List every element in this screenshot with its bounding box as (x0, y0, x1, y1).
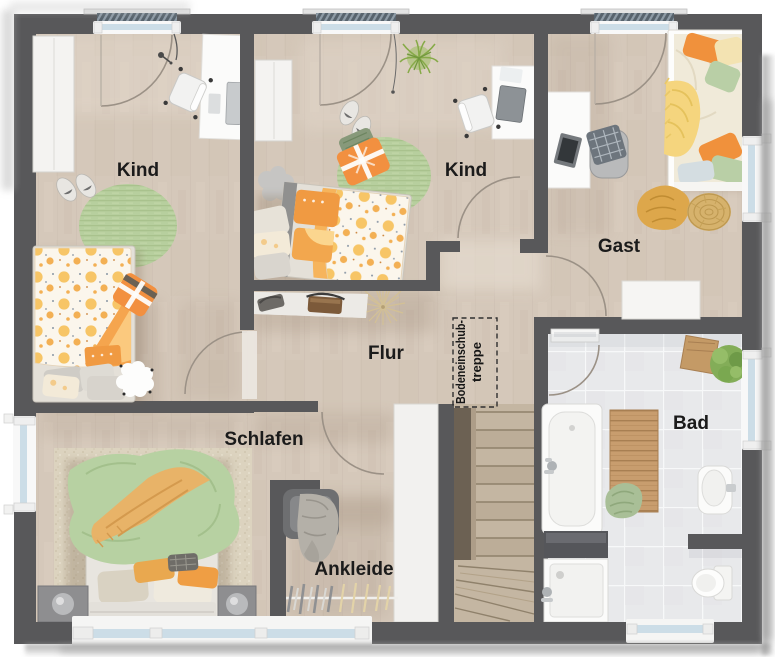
svg-text:Kind: Kind (445, 160, 487, 181)
svg-text:Gast: Gast (598, 236, 641, 257)
svg-text:Bad: Bad (673, 413, 709, 434)
svg-text:Schlafen: Schlafen (224, 429, 303, 450)
svg-text:Ankleide: Ankleide (314, 559, 393, 580)
svg-text:Kind: Kind (117, 160, 159, 181)
svg-text:Bodeneinschub-: Bodeneinschub- (454, 320, 468, 404)
svg-text:treppe: treppe (470, 342, 484, 382)
svg-text:Flur: Flur (368, 343, 404, 364)
